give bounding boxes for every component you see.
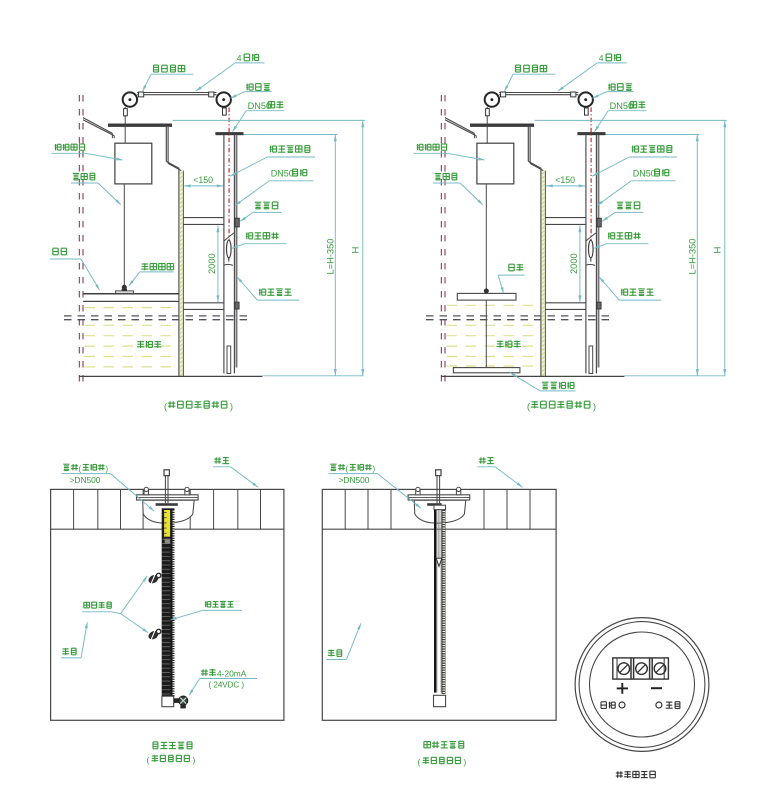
svg-text:4-20mA: 4-20mA <box>217 669 247 679</box>
svg-text:): ) <box>193 756 196 765</box>
svg-text:DN50: DN50 <box>610 101 634 111</box>
svg-text:): ) <box>106 464 109 473</box>
svg-text:2000: 2000 <box>569 253 579 274</box>
svg-text:(: ( <box>147 756 150 765</box>
svg-text:( 24VDC ): ( 24VDC ) <box>209 680 245 689</box>
svg-text:<150: <150 <box>555 175 575 185</box>
svg-text:H: H <box>712 247 723 254</box>
svg-text:L=H-350: L=H-350 <box>326 239 336 275</box>
svg-text:>DN500: >DN500 <box>70 475 101 485</box>
svg-text:(: ( <box>164 402 167 412</box>
svg-text:): ) <box>593 402 596 412</box>
svg-text:(: ( <box>79 464 82 473</box>
svg-text:L=H-350: L=H-350 <box>688 239 698 275</box>
svg-text:DN50: DN50 <box>271 169 294 179</box>
svg-text:2000: 2000 <box>207 253 217 274</box>
svg-text:H: H <box>350 247 361 254</box>
svg-text:): ) <box>373 464 376 473</box>
svg-text:(: ( <box>527 402 530 412</box>
svg-text:>DN500: >DN500 <box>339 475 370 485</box>
svg-text:(: ( <box>346 464 349 473</box>
svg-text:4: 4 <box>237 53 242 63</box>
svg-text:DN50: DN50 <box>633 169 656 179</box>
svg-text:4: 4 <box>599 53 604 63</box>
svg-text:): ) <box>230 402 233 412</box>
svg-text:): ) <box>464 758 467 767</box>
svg-text:DN50: DN50 <box>248 101 272 111</box>
svg-text:(: ( <box>418 758 421 767</box>
svg-text:<150: <150 <box>193 175 213 185</box>
